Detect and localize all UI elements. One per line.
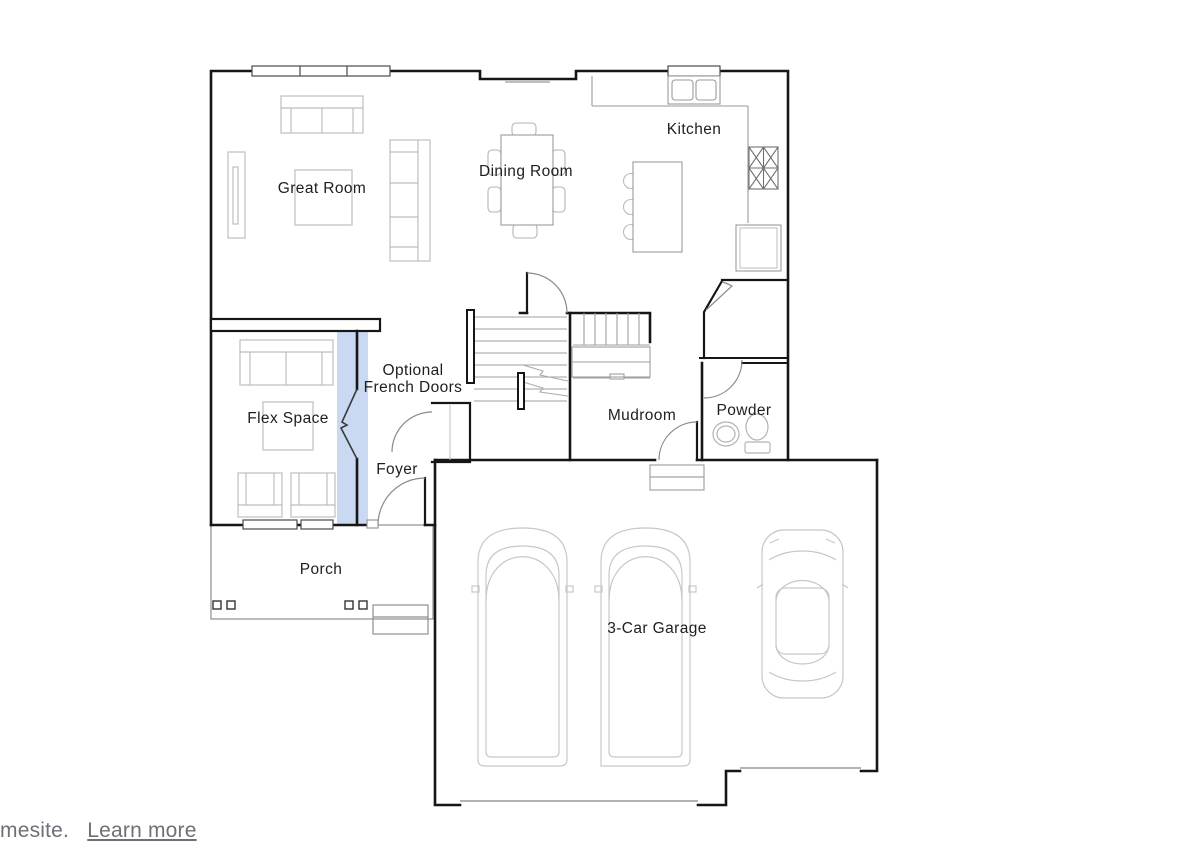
room-label-great-room: Great Room: [278, 180, 366, 197]
room-label-foyer: Foyer: [376, 461, 418, 478]
kitchen-island: [633, 162, 682, 252]
annotation-optional-french-doors-line2: French Doors: [364, 379, 463, 396]
room-label-mudroom: Mudroom: [608, 407, 676, 424]
floorplan-page: Great Room Dining Room Kitchen Flex Spac…: [0, 0, 1182, 862]
coffee-table: [295, 170, 352, 225]
tv: [233, 167, 238, 224]
learn-more-link[interactable]: Learn more: [87, 819, 196, 842]
chair: [552, 187, 565, 212]
garage-doors: [460, 768, 861, 801]
staircase: [467, 310, 650, 409]
footer-note-text: mesite.: [0, 819, 69, 842]
car: [595, 528, 696, 766]
door-threshold: [367, 520, 378, 528]
dining-table: [501, 135, 553, 225]
annotation-optional-french-doors-line1: Optional: [383, 362, 444, 379]
room-label-dining-room: Dining Room: [479, 163, 573, 180]
room-label-garage: 3-Car Garage: [607, 620, 707, 637]
garage-steps: [650, 465, 704, 490]
car: [472, 528, 573, 766]
armchair: [291, 473, 335, 517]
porch-outline: [211, 525, 433, 634]
chair: [488, 187, 501, 212]
dining-furniture: [488, 123, 565, 238]
chair: [512, 123, 536, 136]
garage-cars: [472, 528, 848, 766]
room-label-porch: Porch: [300, 561, 343, 578]
powder-fixtures: [713, 414, 770, 453]
footer-note: mesite. Learn more: [0, 819, 197, 843]
room-label-flex-space: Flex Space: [247, 410, 329, 427]
chair: [513, 224, 537, 238]
great-room-furniture: [228, 96, 430, 261]
sectional-sofa: [390, 140, 430, 261]
porch-posts: [213, 601, 367, 609]
car: [757, 530, 848, 698]
kitchen-fixtures: [592, 76, 781, 271]
room-label-powder: Powder: [717, 402, 772, 419]
cooktop: [749, 147, 778, 189]
flex-space-furniture: [238, 340, 335, 517]
floor-plan-canvas: Great Room Dining Room Kitchen Flex Spac…: [0, 0, 1182, 862]
refrigerator: [736, 225, 781, 271]
room-label-kitchen: Kitchen: [667, 121, 722, 138]
armchair: [238, 473, 282, 517]
